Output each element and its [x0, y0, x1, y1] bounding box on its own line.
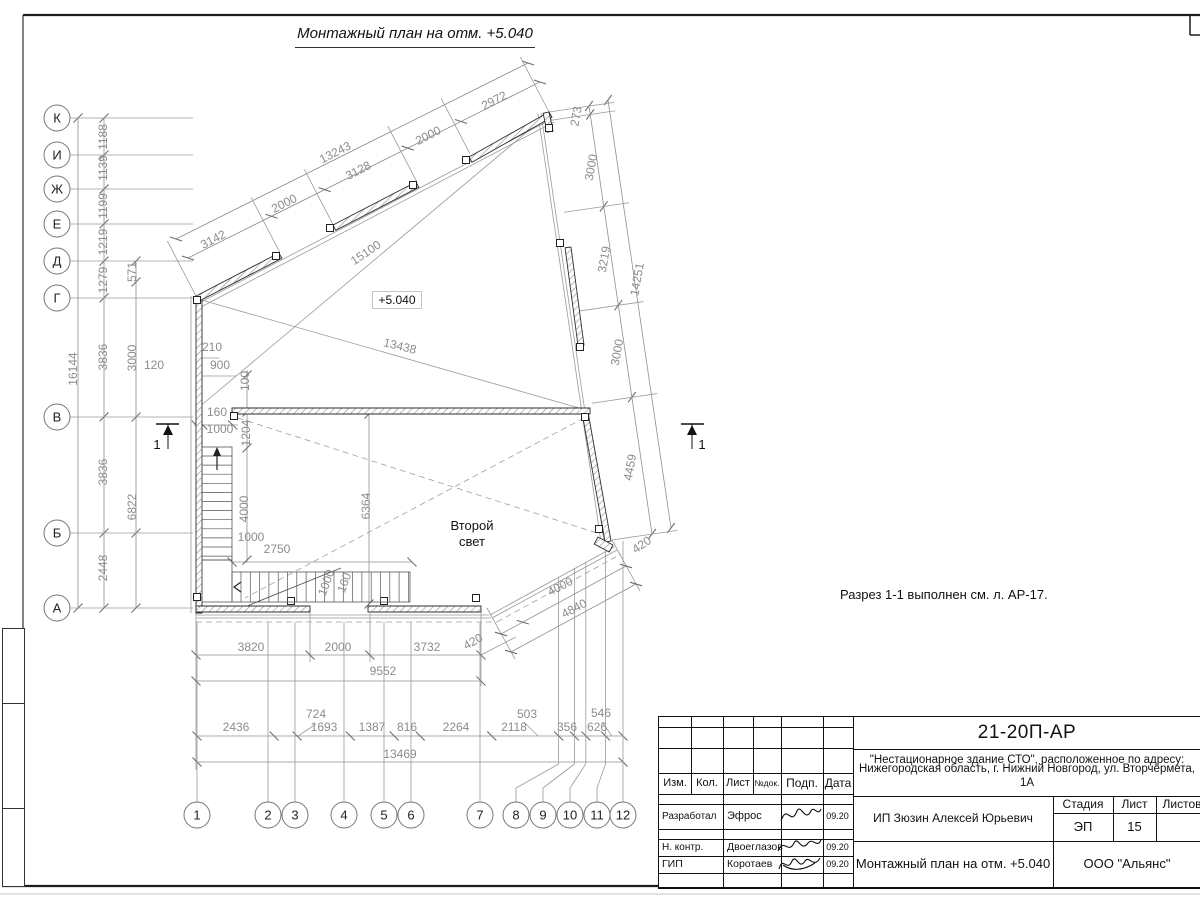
title-block: 21-20П-АР "Нестационарное здание СТО", р… — [658, 716, 1200, 889]
column-marker — [463, 157, 470, 164]
dimension-label: 1199 — [96, 193, 110, 219]
dimension-label: 2000 — [413, 123, 443, 148]
axis-label: Б — [53, 526, 62, 541]
axis-label: И — [52, 148, 61, 163]
column-marker — [546, 125, 553, 132]
axis-label: К — [53, 111, 61, 126]
col-podp: Подп. — [781, 773, 823, 794]
axis-label: 8 — [512, 808, 519, 823]
col-izm: Изм. — [659, 773, 691, 794]
axis-label: 7 — [476, 808, 483, 823]
column-marker — [582, 414, 589, 421]
dimension-label: 100 — [238, 371, 252, 391]
row3-name: Коротаев — [725, 856, 781, 873]
dimension-label: 816 — [397, 720, 417, 734]
col-list: Лист — [723, 773, 753, 794]
title-block-line — [659, 727, 853, 728]
title-block-line — [659, 829, 853, 830]
dimension-label: 503 — [517, 707, 537, 721]
dimension-label: 1000 — [238, 530, 265, 544]
dimension-label: 3000 — [582, 153, 600, 182]
title-block-line — [853, 717, 854, 887]
dimension-label: 3219 — [595, 245, 613, 274]
drawing-sheet: КИЖЕДГВБА1234567891011123142200031282000… — [0, 0, 1200, 900]
title-block-line — [853, 841, 1200, 842]
title-block-line — [823, 717, 824, 887]
drawing-title: Монтажный план на отм. +5.040 — [295, 25, 535, 48]
room-label-line1: Второй — [428, 518, 516, 534]
title-block-line — [659, 748, 853, 749]
col-data: Дата — [823, 773, 853, 794]
dimension-label: 3000 — [125, 344, 139, 371]
section-note: Разрез 1-1 выполнен см. л. АР-17. — [840, 587, 1048, 602]
title-block-line — [659, 794, 853, 795]
column-marker — [273, 253, 280, 260]
room-label: Второй свет — [428, 518, 516, 550]
axis-label: 9 — [539, 808, 546, 823]
dimension-label: 4459 — [621, 453, 639, 482]
column-marker — [327, 225, 334, 232]
elevation-label: +5.040 — [372, 291, 422, 309]
dimension-label: 420 — [461, 630, 486, 652]
row2-role: Н. контр. — [660, 839, 722, 856]
dimension-label: 724 — [306, 707, 326, 721]
dimension-label: 2972 — [479, 88, 509, 113]
wall — [368, 606, 481, 612]
title-block-line — [1113, 796, 1114, 841]
col-ndok: №док. — [753, 773, 781, 794]
dimension-label: 2264 — [443, 720, 470, 734]
dimension-label: 900 — [210, 358, 230, 372]
dimension-label: 4000 — [545, 574, 575, 599]
signature-1 — [777, 801, 823, 829]
dimension-label: 160 — [207, 405, 227, 419]
dimension-label: 2750 — [264, 542, 291, 556]
column-marker — [577, 344, 584, 351]
column-marker — [194, 594, 201, 601]
col-kol: Кол. — [691, 773, 723, 794]
wall — [582, 412, 611, 542]
section-mark-label: 1 — [698, 437, 705, 452]
dimension-label: 2000 — [325, 640, 352, 654]
axis-label: 12 — [616, 808, 630, 823]
row2-date: 09.20 — [822, 839, 853, 856]
dimension-label: 3128 — [343, 158, 373, 183]
sheet-label: Лист — [1113, 796, 1156, 813]
dimension-label: 3732 — [414, 640, 441, 654]
project-address-line2: Нижегородская область, г. Нижний Новгоро… — [857, 769, 1197, 784]
axis-label: Д — [53, 254, 62, 269]
dimension-label: 2000 — [269, 191, 299, 216]
column-marker — [231, 413, 238, 420]
title-block-line — [853, 796, 1200, 797]
dimension-label: 13438 — [382, 335, 418, 357]
dimension-label: 16144 — [66, 352, 80, 386]
dimension-label: 3000 — [608, 338, 626, 367]
sheets-label: Листов — [1156, 796, 1200, 813]
doc-number: 21-20П-АР — [853, 717, 1200, 749]
dimension-label: 160 — [334, 571, 354, 595]
axis-label: 5 — [380, 808, 387, 823]
wall — [333, 182, 419, 230]
dimension-label: 14251 — [627, 261, 647, 297]
dimension-label: 3836 — [96, 458, 110, 485]
client-name: ИП Зюзин Алексей Юрьевич — [855, 796, 1051, 841]
axis-label: 11 — [590, 808, 604, 823]
column-marker — [288, 598, 295, 605]
dimension-label: 1000 — [207, 422, 234, 436]
row3-role: ГИП — [660, 856, 722, 873]
section-arrow — [163, 425, 173, 435]
title-block-line — [1156, 796, 1157, 841]
section-arrow — [687, 425, 697, 435]
title-block-line — [659, 839, 853, 840]
dimension-label: 3836 — [96, 343, 110, 370]
room-label-line2: свет — [428, 534, 516, 550]
margin-box — [2, 703, 25, 810]
dimension-label: 1279 — [96, 266, 110, 293]
wall — [232, 408, 590, 414]
dimension-label: 1139 — [96, 155, 110, 181]
title-block-line — [853, 749, 1200, 750]
wall — [196, 606, 310, 612]
stage-value: ЭП — [1053, 813, 1113, 841]
dimension-label: 3142 — [198, 227, 228, 252]
wall — [196, 253, 282, 301]
column-marker — [596, 526, 603, 533]
title-block-line — [781, 717, 782, 887]
sheet-title: Монтажный план на отм. +5.040 — [855, 841, 1051, 887]
dimension-label: 273 — [567, 105, 584, 127]
dimension-label: 356 — [557, 720, 577, 734]
column-marker — [410, 182, 417, 189]
axis-label: Ж — [51, 182, 63, 197]
title-block-line — [659, 856, 853, 857]
axis-label: В — [53, 410, 62, 425]
dimension-label: 546 — [591, 706, 611, 720]
dimension-label: 9552 — [370, 664, 397, 678]
section-mark-label: 1 — [153, 437, 160, 452]
dimension-label: 4000 — [237, 495, 251, 522]
dimension-label: 2118 — [501, 720, 527, 734]
dimension-label: 1188 — [96, 124, 110, 150]
title-block-line — [723, 717, 724, 887]
dimension-label: 2448 — [96, 554, 110, 581]
row1-role: Разработал — [660, 804, 722, 829]
dimension-label: 1693 — [311, 720, 338, 734]
row3-date: 09.20 — [822, 856, 853, 873]
dimension-label: 6822 — [125, 493, 139, 520]
margin-box — [2, 628, 25, 705]
dimension-label: 13243 — [317, 138, 353, 166]
title-block-line — [659, 773, 853, 774]
axis-label: 4 — [340, 808, 347, 823]
axis-label: А — [53, 601, 62, 616]
axis-label: Е — [53, 217, 62, 232]
axis-label: 3 — [291, 808, 298, 823]
column-marker — [381, 598, 388, 605]
axis-label: Г — [53, 291, 60, 306]
dimension-label: 15100 — [348, 237, 384, 267]
margin-box — [2, 808, 25, 887]
title-block-line — [1053, 813, 1200, 814]
sheet-number: 15 — [1113, 813, 1156, 841]
dimension-label: 3820 — [238, 640, 265, 654]
dimension-label: 210 — [202, 340, 222, 354]
dimension-label: 13469 — [383, 747, 417, 761]
axis-label: 10 — [563, 808, 577, 823]
stair-up-arrow — [213, 447, 221, 456]
row1-name: Эфрос — [725, 804, 779, 829]
dimension-label: 1387 — [359, 720, 386, 734]
row1-date: 09.20 — [822, 804, 853, 829]
dimension-label: 2436 — [223, 720, 250, 734]
column-marker — [473, 595, 480, 602]
dimension-label: 6364 — [359, 492, 373, 519]
dimension-label: 1204 — [239, 419, 253, 446]
dimension-label: 120 — [144, 358, 164, 372]
wall — [469, 112, 552, 162]
dimension-label: 571 — [125, 262, 139, 282]
title-block-line — [691, 717, 692, 794]
axis-label: 6 — [407, 808, 414, 823]
row2-name: Двоеглазов — [725, 839, 781, 856]
axis-label: 1 — [193, 808, 200, 823]
title-block-line — [659, 873, 853, 874]
axis-label: 2 — [264, 808, 271, 823]
title-block-line — [753, 717, 754, 794]
company-name: ООО "Альянс" — [1053, 841, 1200, 887]
column-marker — [194, 297, 201, 304]
stage-label: Стадия — [1053, 796, 1113, 813]
title-block-line — [659, 804, 853, 805]
column-marker — [557, 240, 564, 247]
stair-direction-arrow — [234, 582, 241, 592]
dimension-label: 1219 — [96, 228, 110, 255]
dimension-label: 626 — [587, 720, 607, 734]
